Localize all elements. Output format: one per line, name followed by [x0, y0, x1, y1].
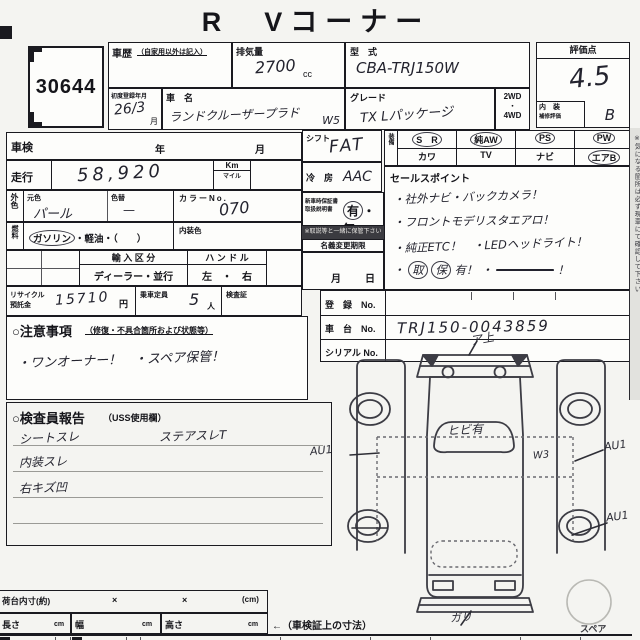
- height-label: 高さ: [165, 618, 183, 631]
- warranty-sublabel: 取扱説明書: [305, 205, 338, 213]
- damage-note-left-panel: AU1: [309, 443, 333, 458]
- height-unit: cm: [248, 621, 258, 628]
- recycle-row: リサイクル 預託金 15710 円 乗車定員 5 人 検査証: [6, 286, 302, 316]
- color-no-value: 070: [218, 197, 250, 219]
- score-box: 評価点 4.5 内 装 補修評価 B: [536, 42, 630, 128]
- first-registration-box: 初度登録年月 26/3 月: [108, 88, 162, 130]
- import-type-label: 輸 入 区 分: [80, 251, 187, 265]
- shaken-month-label: 月: [255, 141, 265, 156]
- fuel-options: ・軽油・（ ）: [75, 234, 146, 245]
- sales-line-4-bullet: ・: [393, 263, 405, 277]
- mileage-label: 走行: [11, 169, 33, 185]
- spare-tire-mark: [567, 580, 611, 624]
- base-color-label: 元色: [27, 193, 41, 203]
- model-code-box: 型 式 CBA-TRJ150W: [345, 42, 530, 88]
- inspector-note-4: 右キズ凹: [19, 478, 68, 497]
- displacement-label: 排気量: [236, 45, 263, 58]
- sales-point-label: セールスポイント: [390, 170, 470, 185]
- damage-note-windshield: ヒビ有: [447, 420, 484, 439]
- sales-line-2: ・フロントモデリスタエアロ！: [393, 212, 554, 231]
- car-name-box: 車 名 ランドクルーザープラド W5: [162, 88, 345, 130]
- warranty-note: ※取説等と一緒に保管下さい: [302, 226, 384, 239]
- recycle-label: リサイクル: [10, 290, 45, 300]
- caution-box: ○注意事項 （修復・不具合箇所および状態等） ・ワンオーナー！ ・スペア保管！: [6, 316, 308, 400]
- caution-subtitle: （修復・不具合箇所および状態等）: [85, 325, 213, 336]
- grade-value: TX Lパッケージ: [359, 101, 453, 126]
- history-box: 車歴 （自家用以外は記入）: [108, 42, 232, 88]
- base-color-value: パール: [33, 203, 72, 222]
- cargo-unit: (cm): [242, 595, 259, 604]
- equip-pw: PW: [593, 132, 616, 144]
- lot-box: 30644: [28, 46, 104, 128]
- sales-line-4-bang: ！: [557, 263, 569, 277]
- car-name-value: ランドクルーザープラド: [169, 104, 300, 126]
- first-registration-value: 26/3: [113, 99, 146, 118]
- shaken-row: 車検 年 月: [6, 132, 302, 160]
- score-label: 評価点: [537, 43, 629, 59]
- history-sublabel: （自家用以外は記入）: [137, 47, 207, 57]
- mile-label: マイル: [214, 171, 250, 180]
- scan-edge-mark: [0, 26, 12, 39]
- drive-2wd-label: 2WD: [496, 92, 529, 101]
- exterior-color-row: 外色 元色 パール 色替 — カラーNo. 070: [6, 190, 302, 222]
- inspector-note-3: 内装スレ: [19, 452, 68, 471]
- model-code-label: 型 式: [350, 45, 377, 58]
- sales-line-4: ・ 取 保 有！ ・ ――――― ！: [393, 261, 569, 279]
- drive-dot: ・: [496, 101, 529, 111]
- lot-number: 30644: [30, 76, 102, 99]
- interior-color-label: 内装色: [179, 225, 202, 236]
- recycle-value: 15710: [55, 289, 111, 309]
- displacement-value: 2700: [254, 56, 296, 78]
- sales-line-1: ・社外ナビ・バックカメラ！: [393, 186, 543, 207]
- mileage-row: 走行 58,920 Km マイル: [6, 160, 302, 190]
- drive-4wd-label: 4WD: [496, 111, 529, 120]
- warranty-box: 新車時保証書 取扱説明書 有・無: [302, 192, 384, 226]
- recycle-unit: 円: [119, 297, 128, 310]
- cargo-dimensions-box: 荷台内寸(約) × × (cm) 長さ cm 幅 cm 高さ cm: [0, 590, 268, 634]
- sales-mark-warranty: 保: [431, 261, 451, 279]
- sales-mark-manual: 取: [408, 261, 428, 279]
- inspector-subtitle: （USS使用欄）: [103, 411, 167, 424]
- warranty-dot: ・: [363, 204, 375, 218]
- transfer-month-label: 月: [331, 270, 341, 285]
- ac-value: AAC: [343, 169, 372, 185]
- page-title: R Vコーナー: [0, 0, 632, 39]
- chassis-no-label: 車 台 No.: [325, 322, 376, 335]
- first-registration-unit: 月: [150, 116, 158, 127]
- recolor-value: —: [123, 203, 135, 217]
- transfer-label: 名義変更期限: [302, 239, 384, 252]
- ac-label: 冷 房: [306, 171, 333, 184]
- car-name-label: 車 名: [166, 91, 193, 104]
- grade-box: グレード TX Lパッケージ: [345, 88, 495, 130]
- import-type-options: ディーラー・並行: [80, 268, 187, 283]
- recycle-sublabel: 預託金: [10, 300, 45, 310]
- shaken-dimensions-note: ←（車検証上の寸法）: [272, 617, 372, 632]
- sales-struck-text: ―――――: [496, 263, 554, 277]
- cargo-label: 荷台内寸(約): [2, 595, 50, 607]
- interior-label: 内 装: [537, 102, 584, 112]
- shaken-label: 車検: [11, 139, 33, 155]
- shaken-year-label: 年: [155, 141, 165, 156]
- doc-label: 検査証: [226, 290, 247, 300]
- displacement-box: 排気量 2700 cc: [232, 42, 345, 88]
- length-unit: cm: [54, 621, 64, 628]
- equipment-label: 装備: [386, 133, 395, 145]
- equip-alloy: 純AW: [470, 132, 502, 147]
- car-name-note: W5: [322, 114, 340, 127]
- registration-no-label: 登 録 No.: [325, 298, 376, 311]
- capacity-label: 乗車定員: [140, 290, 168, 300]
- recolor-label: 色替: [111, 193, 125, 203]
- inspector-note-1: シートスレ: [19, 427, 80, 447]
- equipment-grid: 装備 S R 純AW PS PW カワ TV ナビ エアB: [384, 130, 632, 166]
- km-label: Km: [214, 161, 250, 171]
- caution-note: ・ワンオーナー！ ・スペア保管！: [17, 345, 225, 371]
- equip-ps: PS: [535, 132, 555, 144]
- damage-note-rear-bumper: ガリ: [449, 608, 472, 626]
- shift-label: シフト: [306, 133, 330, 144]
- fuel-row: 燃料 ガソリン・軽油・（ ） 内装色: [6, 222, 302, 250]
- cargo-times-2: ×: [182, 595, 187, 605]
- sales-point-box: セールスポイント ・社外ナビ・バックカメラ！ ・フロントモデリスタエアロ！ ・純…: [384, 166, 632, 290]
- transfer-day-label: 日: [365, 270, 375, 285]
- capacity-unit: 人: [207, 301, 215, 312]
- score-value: 4.5: [568, 61, 612, 95]
- handle-label: ハ ン ド ル: [188, 251, 266, 265]
- ac-box: 冷 房 AAC: [302, 162, 382, 192]
- car-diagram: [335, 335, 632, 635]
- width-unit: cm: [142, 621, 152, 628]
- fuel-gasoline-selected: ガソリン: [29, 230, 75, 246]
- displacement-unit: cc: [303, 69, 312, 79]
- warranty-label: 新車時保証書: [305, 197, 338, 205]
- sales-line-3: ・純正ETC！ ・LEDヘッドライト！: [393, 234, 588, 257]
- equip-navi: ナビ: [536, 152, 554, 162]
- fuel-label: 燃料: [9, 225, 19, 239]
- equip-leather: カワ: [418, 152, 436, 162]
- history-label: 車歴: [112, 45, 132, 60]
- transfer-date-box: 月 日: [302, 252, 384, 290]
- equip-sr: S R: [412, 132, 442, 147]
- equip-tv: TV: [480, 150, 492, 160]
- handle-options: 左 ・ 右: [188, 268, 266, 283]
- mileage-value: 58,920: [77, 161, 165, 187]
- side-vertical-note: ※気になる箇所は必ず現車にて確認して下さい: [631, 134, 640, 293]
- equip-airbag: エアB: [588, 150, 621, 165]
- cargo-times-1: ×: [112, 595, 117, 605]
- auction-sheet: R Vコーナー 30644 車歴 （自家用以外は記入） 排気量 2700 cc …: [0, 0, 640, 640]
- model-code-value: CBA-TRJ150W: [356, 59, 459, 77]
- width-label: 幅: [75, 618, 84, 631]
- capacity-value: 5: [189, 290, 199, 309]
- inspector-report-box: ○検査員報告 （USS使用欄） シートスレ ステアスレT 内装スレ 右キズ凹: [6, 402, 332, 546]
- damage-note-inner: W3: [533, 449, 550, 461]
- sales-line-4-bullet2: ・: [481, 263, 493, 277]
- shift-box: シフト FAT: [302, 130, 382, 162]
- grade-label: グレード: [350, 91, 386, 104]
- import-row: 輸 入 区 分 ディーラー・並行 ハ ン ド ル 左 ・ 右: [6, 250, 302, 286]
- inspector-note-2: ステアスレT: [159, 426, 227, 445]
- interior-sublabel: 補修評価: [537, 112, 584, 120]
- length-label: 長さ: [2, 618, 20, 631]
- sales-line-4-tail: 有！: [454, 263, 477, 277]
- exterior-color-label: 外色: [9, 193, 20, 209]
- drive-type-box: 2WD ・ 4WD: [495, 88, 530, 130]
- warranty-yes-selected: 有: [343, 201, 363, 220]
- caution-title: ○注意事項: [12, 321, 72, 340]
- shift-value: FAT: [328, 134, 365, 157]
- interior-grade-value: B: [605, 106, 615, 124]
- inspector-title: ○検査員報告: [12, 408, 85, 427]
